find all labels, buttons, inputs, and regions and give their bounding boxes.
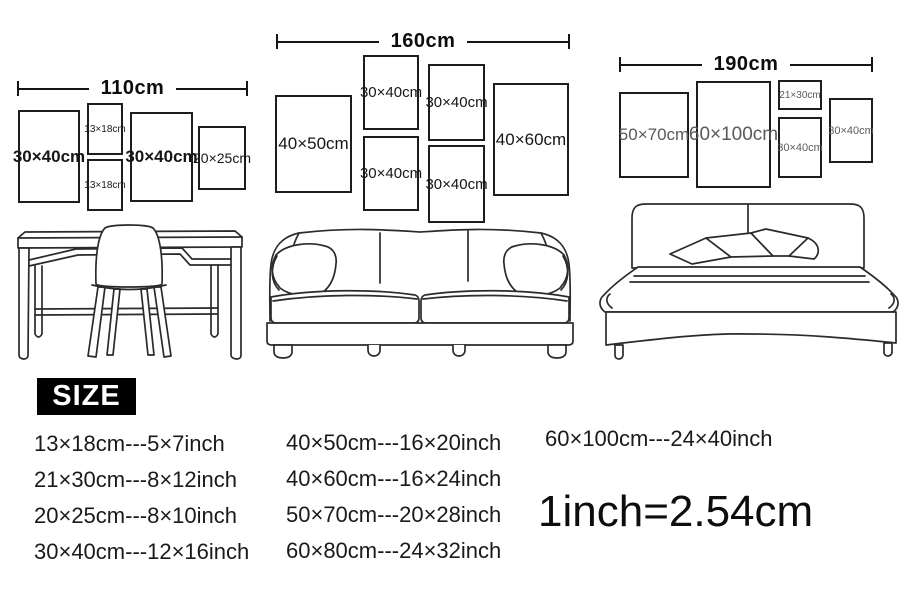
size-row: 40×50cm---16×20inch — [286, 425, 501, 461]
frame-size-box: 40×60cm — [493, 83, 569, 196]
measure-width-label: 190cm — [702, 57, 791, 72]
size-chart-infographic: 110cm 160cm 190cm 30×40cm 13×18cm 13×18c… — [0, 0, 920, 600]
frame-size-box: 13×18cm — [87, 103, 123, 155]
frame-size-box: 40×50cm — [275, 95, 352, 193]
measure-line-desk: 110cm — [17, 81, 248, 96]
size-column-3: 60×100cm---24×40inch — [545, 421, 772, 457]
measure-segment — [19, 88, 89, 90]
frame-size-box: 13×18cm — [87, 159, 123, 211]
sofa-drawing — [255, 226, 585, 360]
measure-tick-right — [871, 57, 873, 72]
measure-tick-right — [246, 81, 248, 96]
measure-line-bed: 190cm — [619, 57, 873, 72]
size-column-1: 13×18cm---5×7inch 21×30cm---8×12inch 20×… — [34, 426, 249, 570]
size-row: 13×18cm---5×7inch — [34, 426, 249, 462]
size-row: 40×60cm---16×24inch — [286, 461, 501, 497]
measure-width-label: 110cm — [89, 81, 177, 96]
size-badge: SIZE — [37, 378, 136, 415]
measure-segment — [621, 64, 702, 66]
size-row: 50×70cm---20×28inch — [286, 497, 501, 533]
inch-cm-conversion-note: 1inch=2.54cm — [538, 487, 813, 537]
measure-line-sofa: 160cm — [276, 34, 570, 49]
frame-size-box: 30×40cm — [18, 110, 80, 203]
frame-size-box: 30×40cm — [363, 136, 419, 211]
bed-drawing — [592, 196, 910, 360]
frame-size-box: 30×40cm — [829, 98, 873, 163]
frame-size-box: 20×25cm — [198, 126, 246, 190]
frame-size-box: 21×30cm — [778, 80, 822, 110]
size-row: 20×25cm---8×10inch — [34, 498, 249, 534]
measure-tick-right — [568, 34, 570, 49]
size-column-2: 40×50cm---16×20inch 40×60cm---16×24inch … — [286, 425, 501, 569]
measure-segment — [278, 41, 379, 43]
size-row: 60×100cm---24×40inch — [545, 421, 772, 457]
measure-segment — [176, 88, 246, 90]
desk-and-chair-drawing — [14, 222, 246, 360]
frame-size-box: 50×70cm — [619, 92, 689, 178]
frame-size-box: 30×40cm — [428, 64, 485, 141]
measure-width-label: 160cm — [379, 34, 468, 49]
size-row: 60×80cm---24×32inch — [286, 533, 501, 569]
frame-size-box: 30×40cm — [428, 145, 485, 223]
size-row: 30×40cm---12×16inch — [34, 534, 249, 570]
frame-size-box: 30×40cm — [130, 112, 193, 202]
frame-size-box: 30×40cm — [363, 55, 419, 130]
measure-segment — [790, 64, 871, 66]
frame-size-box: 30×40cm — [778, 117, 822, 178]
frame-size-box: 60×100cm — [696, 81, 771, 188]
size-row: 21×30cm---8×12inch — [34, 462, 249, 498]
measure-segment — [467, 41, 568, 43]
